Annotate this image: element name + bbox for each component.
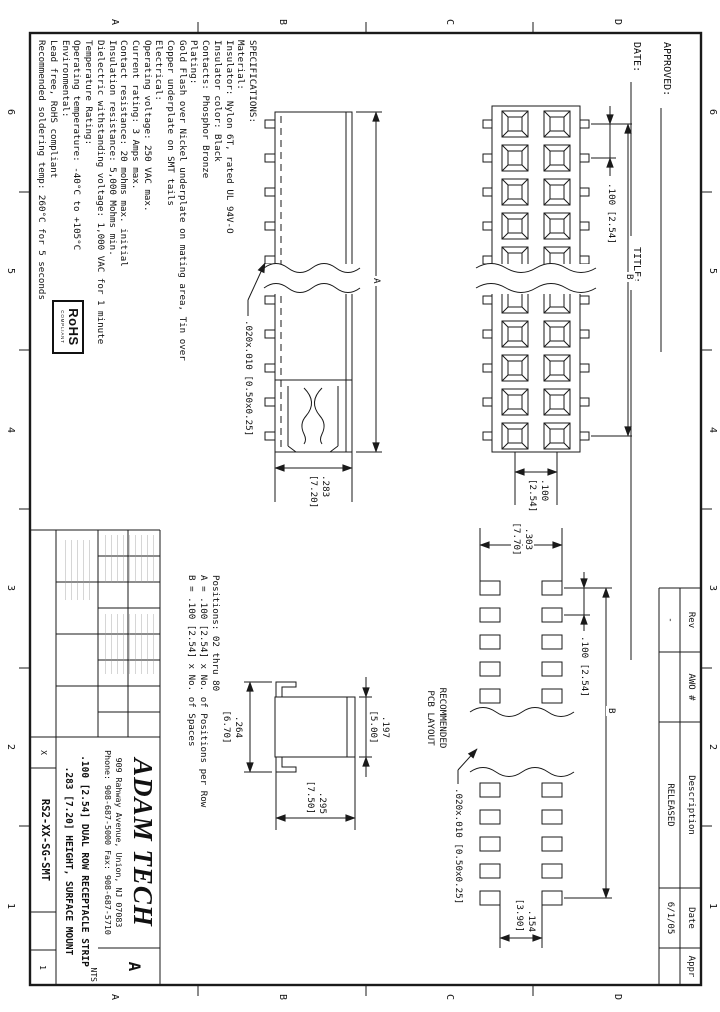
awo-header: AWO # bbox=[685, 652, 696, 722]
spec-line: Recommended soldering temp: 260°C for 5 … bbox=[36, 40, 48, 361]
formula-a: A = .100 [2.54] x No. of Positions per R… bbox=[197, 575, 209, 807]
spec-line: Insulator: Nylon 6T, rated UL 94V-O bbox=[223, 40, 235, 361]
title-block-fine-print bbox=[104, 535, 154, 583]
zone-col-3-bottom: 3 bbox=[4, 571, 16, 605]
zone-col-5-bottom: 5 bbox=[4, 254, 16, 288]
zone-col-4-bottom: 4 bbox=[4, 413, 16, 447]
spec-line: Gold Flash over Nickel underplate on mat… bbox=[176, 40, 188, 361]
approved-label: APPROVED: bbox=[661, 42, 672, 96]
pcb-pad-dim: .020x.010 [0.50x0.25] bbox=[453, 788, 464, 904]
zone-row-c-right: C bbox=[443, 989, 455, 1005]
zone-col-3-top: 3 bbox=[706, 571, 718, 605]
part-number: RS2-XX-SG-SMT bbox=[39, 768, 50, 912]
spec-line: Operating voltage: 250 VAC max. bbox=[141, 40, 153, 361]
zone-col-1-bottom: 1 bbox=[4, 889, 16, 923]
spec-line: Contacts: Phosphor Bronze bbox=[199, 40, 211, 361]
rohs-compliant-logo: RoHS COMPLIANT bbox=[52, 300, 84, 354]
zone-col-2-bottom: 2 bbox=[4, 730, 16, 764]
rohs-name: RoHS bbox=[65, 302, 82, 352]
end-view-top-dim-in: .197 bbox=[380, 705, 391, 749]
pcb-span-dim-in: .303 bbox=[523, 516, 534, 562]
approval-underlines bbox=[631, 82, 661, 660]
appr-header: Appr bbox=[685, 948, 696, 985]
pcb-gap-dim-in: .154 bbox=[526, 886, 537, 932]
rev-value: - bbox=[664, 588, 675, 652]
top-view-row-dim-mm: [2.54] bbox=[527, 477, 538, 514]
date-label: DATE: bbox=[631, 42, 642, 72]
zone-row-d-right: D bbox=[611, 989, 623, 1005]
formula-b: B = .100 [2.54] x No. of Spaces bbox=[185, 575, 197, 807]
spec-line: Insulation resistance: 5,000 Mohms min. bbox=[106, 40, 118, 361]
positions-range: Positions: 02 thru 80 bbox=[209, 575, 221, 807]
zone-row-b-right: B bbox=[276, 989, 288, 1005]
side-view-tail-dim: .020x.010 [0.50x0.25] bbox=[243, 320, 254, 436]
zone-col-6-top: 6 bbox=[706, 95, 718, 129]
top-view-pitch-dim: .100 [2.54] bbox=[606, 181, 617, 246]
spec-line: Contact resistance: 20 mohms max. initia… bbox=[118, 40, 130, 361]
spec-line: Plating: bbox=[188, 40, 200, 361]
tolerance-mark: X bbox=[39, 739, 48, 766]
pcb-pitch-dim: .100 [2.54] bbox=[579, 636, 590, 697]
pcb-span-dim-mm: [7.70] bbox=[511, 516, 522, 562]
spec-line: SPECIFICATIONS: bbox=[246, 40, 258, 361]
rev-header: Rev bbox=[685, 588, 696, 652]
pcb-layout-figure bbox=[458, 528, 612, 948]
side-view-height-dim-in: .283 bbox=[320, 473, 331, 499]
zone-row-c-left: C bbox=[443, 14, 455, 30]
top-view-span-dim: B bbox=[624, 272, 635, 282]
top-view-figure bbox=[474, 106, 632, 505]
zone-col-2-top: 2 bbox=[706, 730, 718, 764]
zone-col-5-top: 5 bbox=[706, 254, 718, 288]
zone-row-a-right: A bbox=[108, 989, 120, 1005]
positions-notes: Positions: 02 thru 80 A = .100 [2.54] x … bbox=[185, 575, 221, 807]
side-view-figure bbox=[248, 112, 382, 502]
pcb-gap-dim-mm: [3.90] bbox=[514, 886, 525, 932]
end-view-height-dim-in: .295 bbox=[317, 774, 328, 814]
zone-col-1-top: 1 bbox=[706, 889, 718, 923]
spec-line: Dielectric withstanding voltage: 1,000 V… bbox=[94, 40, 106, 361]
sheet-size: A bbox=[129, 948, 140, 985]
spec-line: Material: bbox=[235, 40, 247, 361]
scale-value: NTS bbox=[89, 900, 98, 982]
side-view-height-dim-mm: [7.20] bbox=[308, 473, 319, 510]
zone-col-6-bottom: 6 bbox=[4, 95, 16, 129]
description-header: Description bbox=[685, 722, 696, 888]
side-view-length-dim: A bbox=[371, 276, 382, 286]
part-description-line2: .283 [7.20] HEIGHT, SURFACE MOUNT bbox=[63, 737, 74, 985]
pcb-overall-dim: B bbox=[606, 706, 617, 716]
zone-row-b-left: B bbox=[276, 14, 288, 30]
title-block-fine-print bbox=[62, 540, 90, 600]
end-view-top-dim-mm: [5.00] bbox=[368, 705, 379, 749]
spec-line: Electrical: bbox=[153, 40, 165, 361]
date-header: Date bbox=[685, 888, 696, 948]
spec-line: Insulator color: Black bbox=[211, 40, 223, 361]
company-phone: Phone: 908-687-5000 Fax: 908-687-5710 bbox=[103, 739, 113, 946]
spec-line: Copper underplate on SMT tails bbox=[164, 40, 176, 361]
end-view-height-dim-mm: [7.50] bbox=[305, 774, 316, 814]
end-view-base-dim-mm: [6.70] bbox=[221, 700, 232, 754]
company-address: 909 Rahway Avenue, Union, NJ 07083 bbox=[114, 739, 124, 946]
title-block-fine-print bbox=[104, 614, 154, 674]
pcb-caption-line2: PCB LAYOUT bbox=[425, 658, 436, 778]
part-description-line1: .100 [2.54] DUAL ROW RECEPTACLE STRIP bbox=[79, 737, 90, 985]
zone-col-4-top: 4 bbox=[706, 413, 718, 447]
drawing-sheet: 6 5 4 3 2 1 6 5 4 3 2 1 D C B A D C B A … bbox=[0, 0, 720, 1012]
zone-row-d-left: D bbox=[611, 14, 623, 30]
end-view-base-dim-in: .264 bbox=[233, 700, 244, 754]
pcb-caption-line1: RECOMMENDED bbox=[437, 658, 448, 778]
spec-line: Temperature Rating: bbox=[82, 40, 94, 361]
sheet-number: 1 bbox=[38, 950, 47, 985]
description-value: RELEASED bbox=[664, 722, 675, 888]
spec-line: Current rating: 3 Amps max. bbox=[129, 40, 141, 361]
date-value: 6/1/05 bbox=[664, 888, 675, 948]
zone-row-a-left: A bbox=[108, 14, 120, 30]
company-logo: ADAM TECH bbox=[127, 739, 159, 946]
top-view-row-dim-in: .100 bbox=[539, 477, 550, 503]
